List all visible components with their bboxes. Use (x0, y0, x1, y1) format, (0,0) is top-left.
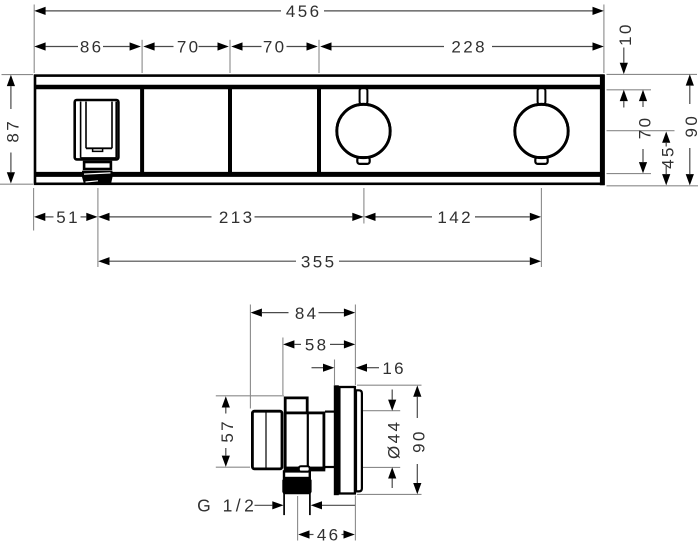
svg-text:10: 10 (616, 22, 635, 46)
svg-text:84: 84 (295, 304, 319, 323)
svg-text:45: 45 (659, 145, 678, 169)
svg-text:46: 46 (317, 526, 341, 545)
svg-text:355: 355 (301, 252, 337, 271)
svg-text:Ø44: Ø44 (385, 420, 404, 459)
svg-text:70: 70 (635, 116, 654, 140)
svg-text:228: 228 (451, 38, 487, 57)
svg-text:70: 70 (177, 38, 201, 57)
svg-text:70: 70 (263, 38, 287, 57)
svg-text:456: 456 (286, 2, 322, 21)
svg-text:57: 57 (218, 419, 237, 443)
svg-text:90: 90 (682, 114, 700, 138)
svg-text:16: 16 (382, 359, 406, 378)
svg-text:87: 87 (3, 119, 22, 143)
svg-text:58: 58 (305, 336, 329, 355)
svg-text:G 1/2: G 1/2 (197, 496, 257, 516)
svg-text:90: 90 (410, 429, 429, 453)
svg-text:86: 86 (80, 38, 104, 57)
svg-text:213: 213 (219, 208, 255, 227)
svg-text:142: 142 (437, 208, 473, 227)
svg-text:51: 51 (56, 208, 80, 227)
